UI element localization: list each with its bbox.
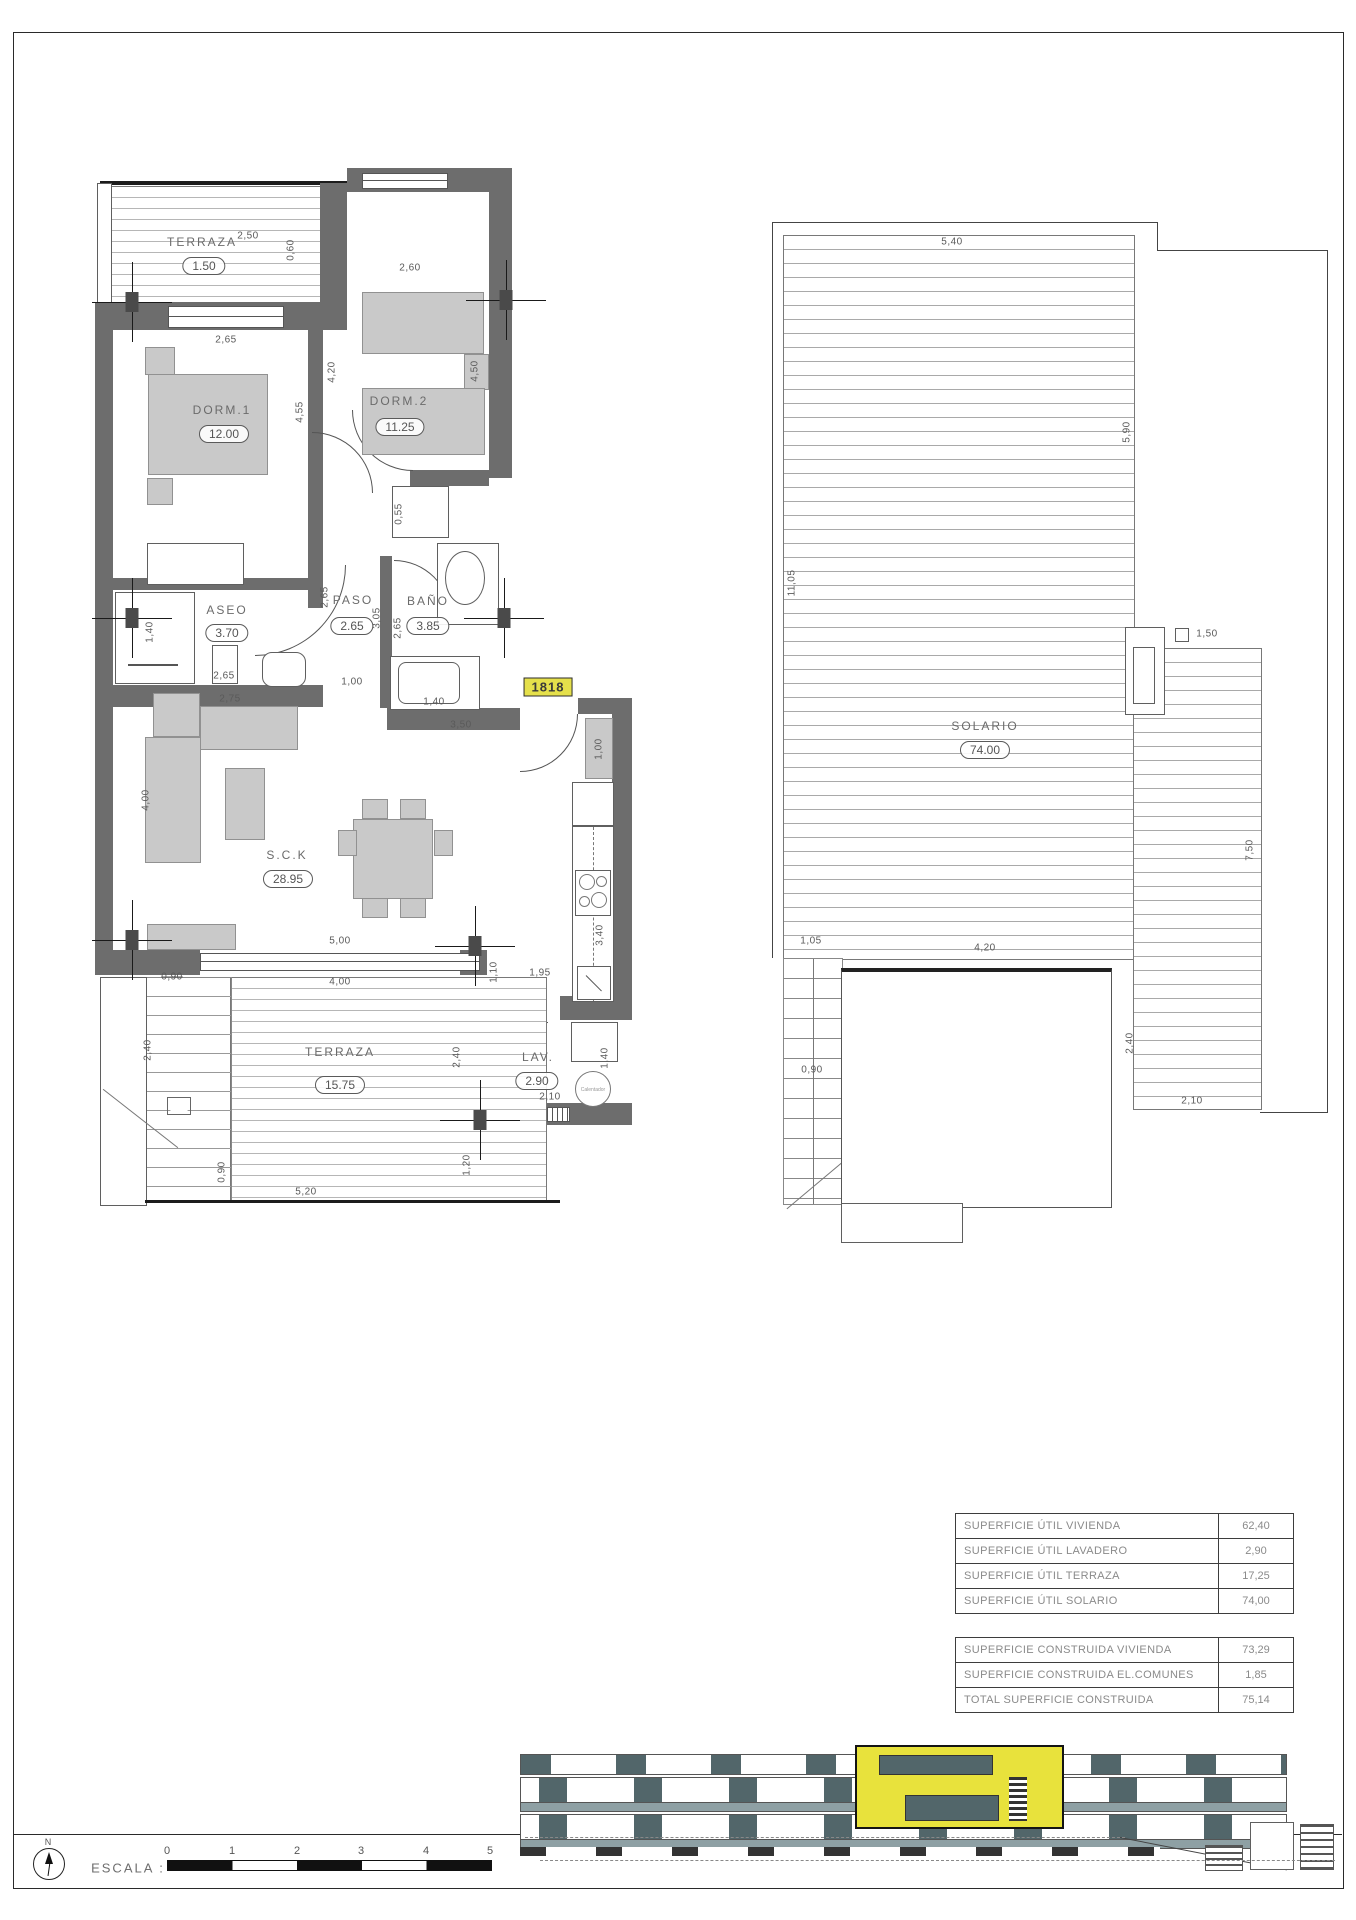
row-value: 1,85 [1218, 1663, 1293, 1687]
stair-direction-arrow [168, 1098, 190, 1114]
washer [571, 1022, 618, 1062]
ground-dashed-line [525, 1837, 1125, 1838]
room-area-aseo: 3.70 [205, 624, 248, 642]
furniture-dining-table [353, 819, 433, 899]
row-label: TOTAL SUPERFICIE CONSTRUIDA [956, 1688, 1218, 1712]
dim-label: 2,40 [452, 1046, 463, 1067]
row-label: SUPERFICIE ÚTIL LAVADERO [956, 1539, 1218, 1563]
dim-label: 1,95 [529, 968, 550, 979]
row-label: SUPERFICIE ÚTIL TERRAZA [956, 1564, 1218, 1588]
grid-marker-icon [466, 260, 546, 340]
dim-label: 1,10 [489, 961, 500, 982]
scale-tick: 2 [294, 1845, 300, 1857]
room-area-lav: 2.90 [515, 1072, 558, 1090]
table-row: SUPERFICIE ÚTIL SOLARIO 74,00 [956, 1588, 1293, 1613]
balcony-rail [100, 181, 347, 185]
row-value: 17,25 [1218, 1564, 1293, 1588]
furniture-armchair [153, 693, 200, 737]
scale-bar [167, 1860, 492, 1871]
grid-marker-icon [464, 578, 544, 658]
scale-label: ESCALA : [91, 1861, 165, 1876]
dim-label: 3,40 [595, 924, 606, 945]
dim-label: 0,90 [801, 1065, 822, 1076]
dim-label: 3,50 [450, 720, 471, 731]
table-row: SUPERFICIE ÚTIL LAVADERO 2,90 [956, 1538, 1293, 1563]
scale-tick: 3 [358, 1845, 364, 1857]
dim-label: 5,00 [329, 936, 350, 947]
wall [410, 470, 489, 486]
open-void [841, 968, 1112, 1208]
faucet [586, 975, 602, 991]
dim-label: 4,55 [295, 401, 306, 422]
exterior-stair [1300, 1824, 1334, 1870]
vent-box [1175, 628, 1189, 642]
ground-dashed-line [540, 1860, 1335, 1861]
table-row: SUPERFICIE ÚTIL TERRAZA 17,25 [956, 1563, 1293, 1588]
solario-deck [783, 235, 1135, 960]
grid-marker-icon [440, 1080, 520, 1160]
dim-label: 2,50 [237, 231, 258, 242]
table-row: SUPERFICIE CONSTRUIDA EL.COMUNES 1,85 [956, 1662, 1293, 1687]
wall [612, 698, 632, 1015]
solario-deck [1133, 648, 1262, 1110]
outline [1157, 222, 1158, 250]
elevation-plinth [520, 1847, 1160, 1856]
dim-label: 1,20 [462, 1154, 473, 1175]
room-label-bano: BAÑO [407, 594, 449, 608]
stairwell [783, 958, 843, 1205]
room-label-paso: PASO [333, 593, 373, 607]
grid-marker-icon [92, 262, 172, 342]
exterior-stair [1205, 1845, 1243, 1871]
stair-centerline [813, 959, 814, 1204]
dim-label: 7,50 [1245, 839, 1256, 860]
surface-table-construida: SUPERFICIE CONSTRUIDA VIVIENDA 73,29 SUP… [955, 1637, 1294, 1713]
stair-tower [1250, 1822, 1294, 1870]
scale-tick: 1 [229, 1845, 235, 1857]
dim-label: 5,20 [295, 1187, 316, 1198]
lower-landing [841, 1203, 963, 1243]
chimney-flue [1133, 647, 1155, 704]
terraza-rail [145, 1200, 560, 1203]
dim-label: 2,75 [219, 694, 240, 705]
kitchen-sink [577, 966, 611, 1000]
dim-label: 5,40 [941, 237, 962, 248]
dim-label: 2,60 [399, 263, 420, 274]
row-value: 2,90 [1218, 1539, 1293, 1563]
building-elevation [505, 1742, 1335, 1867]
row-label: SUPERFICIE CONSTRUIDA EL.COMUNES [956, 1663, 1218, 1687]
dim-label: 4,20 [974, 943, 995, 954]
highlighted-unit [855, 1745, 1064, 1829]
outline [1157, 250, 1327, 251]
dim-label: 1,50 [1196, 629, 1217, 640]
room-label-dorm1: DORM.1 [193, 403, 252, 417]
row-value: 74,00 [1218, 1589, 1293, 1613]
water-heater: Calentador [575, 1071, 611, 1107]
unit-window [879, 1755, 993, 1775]
compass-north-label: N [45, 1837, 52, 1847]
fridge [572, 782, 614, 826]
room-label-solario: SOLARIO [951, 719, 1018, 733]
row-value: 73,29 [1218, 1638, 1293, 1662]
dim-label: 4,50 [470, 360, 481, 381]
row-label: SUPERFICIE ÚTIL VIVIENDA [956, 1514, 1218, 1538]
furniture-chair [338, 830, 357, 856]
outline [1260, 1112, 1327, 1113]
dim-label: 1,00 [341, 677, 362, 688]
furniture-chair [434, 830, 453, 856]
dim-label: 2,10 [1181, 1096, 1202, 1107]
furniture-sofa [200, 706, 298, 750]
sink [262, 652, 306, 687]
scale-tick: 5 [487, 1845, 493, 1857]
surface-table-util: SUPERFICIE ÚTIL VIVIENDA 62,40 SUPERFICI… [955, 1513, 1294, 1614]
room-area-dorm1: 12.00 [199, 425, 249, 443]
furniture-nightstand [145, 347, 175, 375]
room-label-dorm2: DORM.2 [370, 394, 429, 408]
row-value: 62,40 [1218, 1514, 1293, 1538]
dim-label: 3,05 [372, 607, 383, 628]
dim-label: 4,20 [327, 361, 338, 382]
room-area-terraza-top: 1.50 [182, 257, 225, 275]
room-area-paso: 2.65 [330, 617, 373, 635]
window [362, 173, 448, 189]
dim-label: 2,65 [213, 671, 234, 682]
table-row: SUPERFICIE CONSTRUIDA VIVIENDA 73,29 [956, 1638, 1293, 1662]
north-arrow-icon [33, 1848, 65, 1880]
table-row: TOTAL SUPERFICIE CONSTRUIDA 75,14 [956, 1687, 1293, 1712]
water-heater-label: Calentador [576, 1087, 610, 1093]
room-area-dorm2: 11.25 [375, 418, 424, 436]
dim-label: 4,00 [329, 977, 350, 988]
shower-drain [128, 664, 178, 666]
dim-label: 5,90 [1122, 421, 1133, 442]
table-row: SUPERFICIE ÚTIL VIVIENDA 62,40 [956, 1514, 1293, 1538]
unit-badge: 1818 [524, 678, 573, 697]
dim-label: 2,65 [215, 335, 236, 346]
dim-label: 1,40 [145, 621, 156, 642]
outline [772, 222, 773, 958]
grid-marker-icon [435, 906, 515, 986]
dim-label: 1,05 [800, 936, 821, 947]
dim-label: 2,40 [1125, 1032, 1136, 1053]
burner [579, 896, 590, 907]
unit-window [905, 1795, 999, 1821]
compass-tail [48, 1862, 51, 1876]
scale-tick: 0 [164, 1845, 170, 1857]
dim-label: 2,65 [393, 617, 404, 638]
furniture-chair [362, 898, 388, 918]
furniture-chair [400, 799, 426, 819]
dim-label: 1,00 [594, 738, 605, 759]
room-label-lav: LAV. [522, 1050, 554, 1064]
stair-landing [100, 977, 147, 1206]
furniture-coffee-table [225, 768, 265, 840]
dim-label: 0,60 [286, 239, 297, 260]
wall [113, 685, 323, 707]
drawing-sheet: Calentador 1818 TERRAZA 1.50 DORM.1 12.0… [0, 0, 1356, 1920]
row-label: SUPERFICIE ÚTIL SOLARIO [956, 1589, 1218, 1613]
row-label: SUPERFICIE CONSTRUIDA VIVIENDA [956, 1638, 1218, 1662]
grid-marker-icon [92, 900, 172, 980]
furniture-sofa [145, 737, 201, 863]
room-label-aseo: ASEO [206, 603, 247, 617]
room-label-terraza-bottom: TERRAZA [305, 1045, 375, 1059]
grid-marker-icon [92, 578, 172, 658]
room-area-sck: 28.95 [263, 870, 313, 888]
outline [1327, 250, 1328, 1113]
wall [320, 183, 347, 305]
burner [579, 874, 595, 890]
dim-label: 2,65 [320, 586, 331, 607]
furniture-chair [400, 898, 426, 918]
dim-label: 0,55 [394, 503, 405, 524]
window [168, 306, 284, 328]
burner [591, 892, 607, 908]
dim-label: 4,00 [141, 789, 152, 810]
burner [596, 876, 607, 887]
room-area-terraza-bottom: 15.75 [315, 1076, 365, 1094]
furniture-nightstand [147, 478, 173, 505]
scale-tick: 4 [423, 1845, 429, 1857]
dim-label: 0,90 [161, 972, 182, 983]
dim-label: 1,40 [423, 697, 444, 708]
room-label-terraza-top: TERRAZA [167, 235, 237, 249]
furniture-chair [362, 799, 388, 819]
room-label-sck: S.C.K [266, 848, 307, 862]
room-area-solario: 74.00 [960, 741, 1010, 759]
dim-label: 11,05 [787, 570, 798, 597]
unit-shutter [1009, 1777, 1027, 1821]
dim-label: 0,90 [217, 1161, 228, 1182]
room-area-bano: 3.85 [406, 617, 449, 635]
dim-label: 2,40 [143, 1039, 154, 1060]
dim-label: 1,40 [600, 1047, 611, 1068]
outline [772, 222, 1157, 223]
row-value: 75,14 [1218, 1688, 1293, 1712]
dim-label: 2,10 [539, 1092, 560, 1103]
